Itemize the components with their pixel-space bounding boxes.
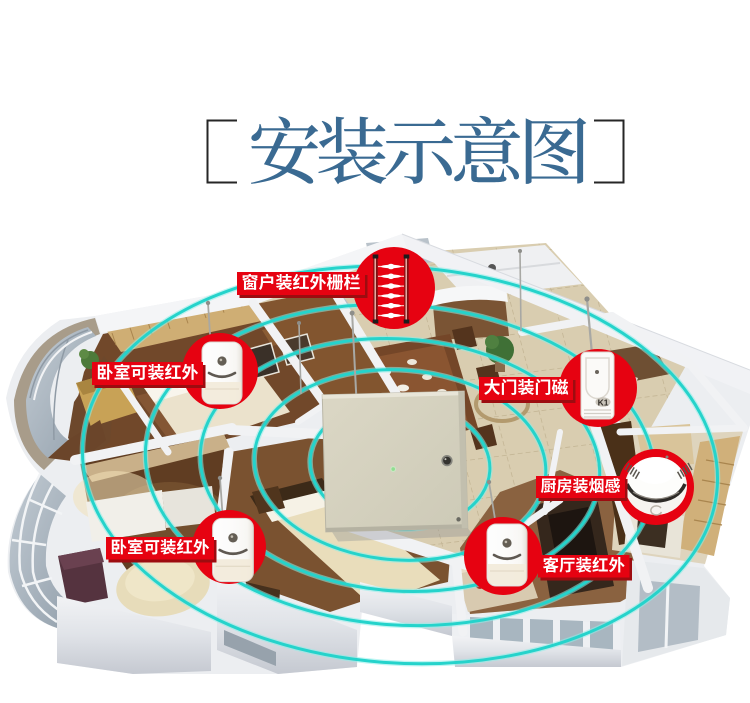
svg-text:K1: K1 bbox=[598, 398, 609, 408]
